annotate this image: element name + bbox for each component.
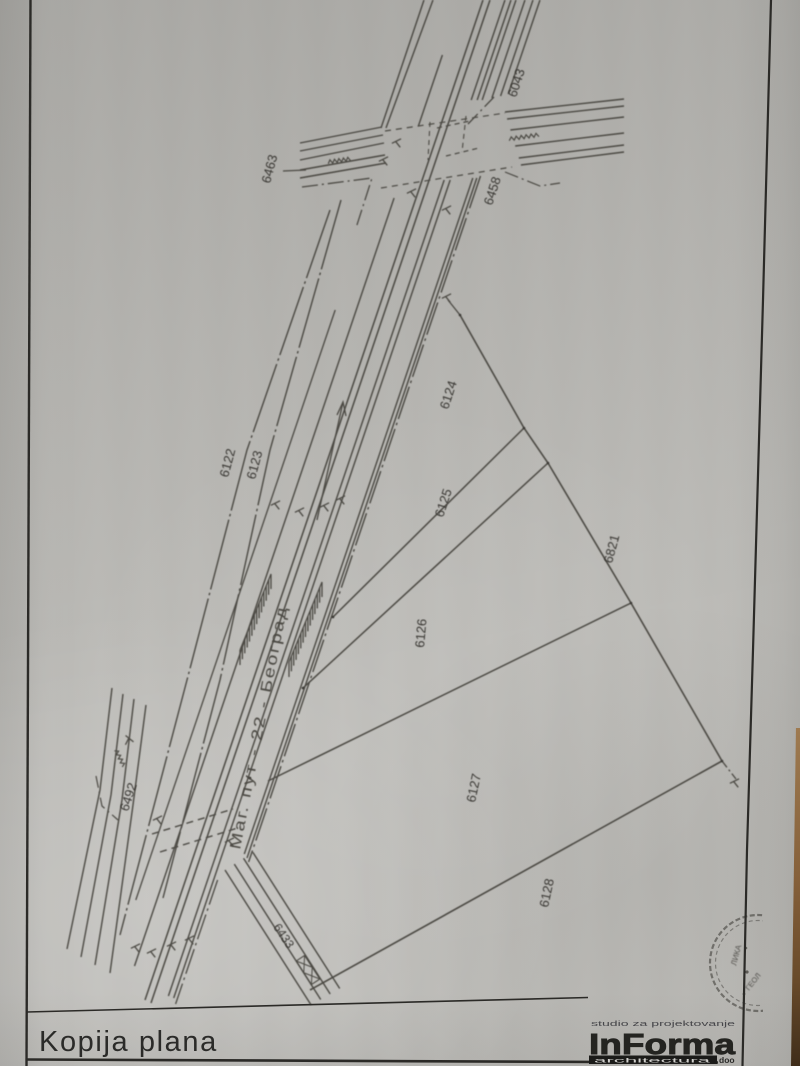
svg-text:ЛИКА: ЛИКА (729, 943, 743, 966)
svg-text:Kopija plana: Kopija plana (39, 1026, 218, 1058)
svg-text:studio za projektovanje: studio za projektovanje (591, 1021, 735, 1028)
svg-text:6126: 6126 (412, 618, 429, 648)
svg-text:6821: 6821 (600, 533, 622, 565)
svg-text:6043: 6043 (505, 67, 528, 99)
svg-text:6127: 6127 (463, 772, 484, 803)
svg-text:6492: 6492 (117, 781, 140, 813)
svg-text:architectura: architectura (594, 1057, 711, 1064)
svg-text:doo: doo (719, 1055, 735, 1065)
svg-text:6463: 6463 (258, 153, 280, 185)
svg-text:6458: 6458 (481, 175, 504, 207)
svg-text:6128: 6128 (536, 877, 557, 908)
svg-text:ГЕОЛ: ГЕОЛ (743, 971, 762, 992)
svg-text:6124: 6124 (437, 379, 460, 411)
svg-text:6122: 6122 (216, 447, 238, 479)
svg-text:6125: 6125 (432, 487, 455, 519)
